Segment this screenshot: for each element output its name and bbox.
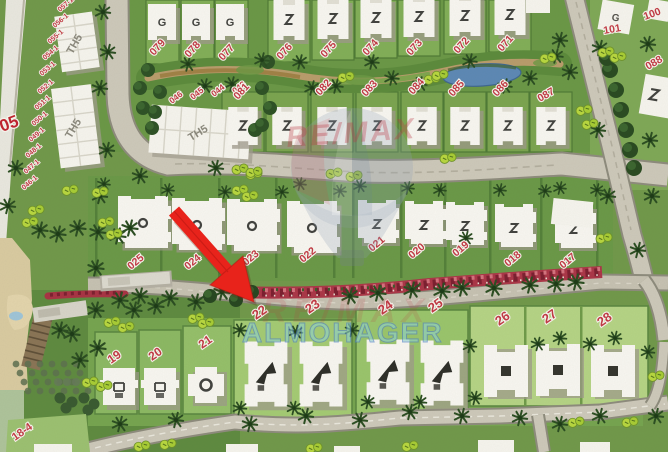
svg-text:RE/MAX: RE/MAX: [262, 292, 430, 330]
